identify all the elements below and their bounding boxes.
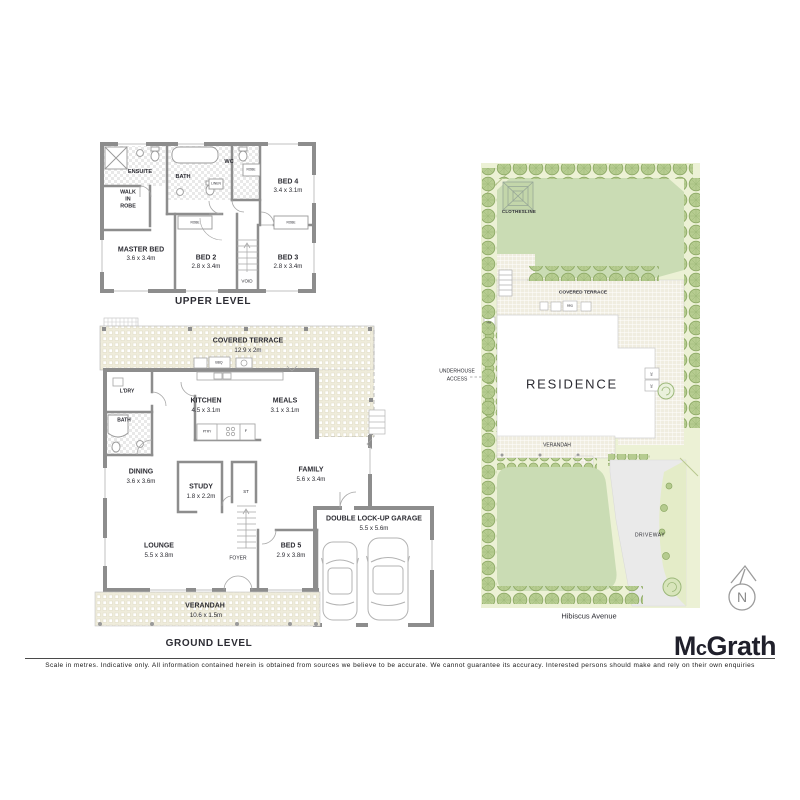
floorplan-page: N ENSUITEBATHWCLINENROBEBED 43.4 x 3.1mW… [0,0,800,800]
car-icon [322,542,359,620]
disclaimer-text: Scale in metres. Indicative only. All in… [0,662,800,669]
footer-divider [25,658,775,659]
floorplan-drawing: N [0,0,800,800]
upper-level-plan [100,142,316,293]
mcgrath-logo: McGrath [674,633,776,660]
north-letter: N [737,589,747,605]
clothesline-icon [503,182,533,210]
site-plan [470,163,700,608]
logo-m: M [674,631,696,661]
tree-icon [658,383,674,399]
car-icon [367,538,410,620]
logo-c: c [696,638,707,660]
logo-rest: Grath [706,631,776,661]
ground-level-plan [95,318,434,627]
